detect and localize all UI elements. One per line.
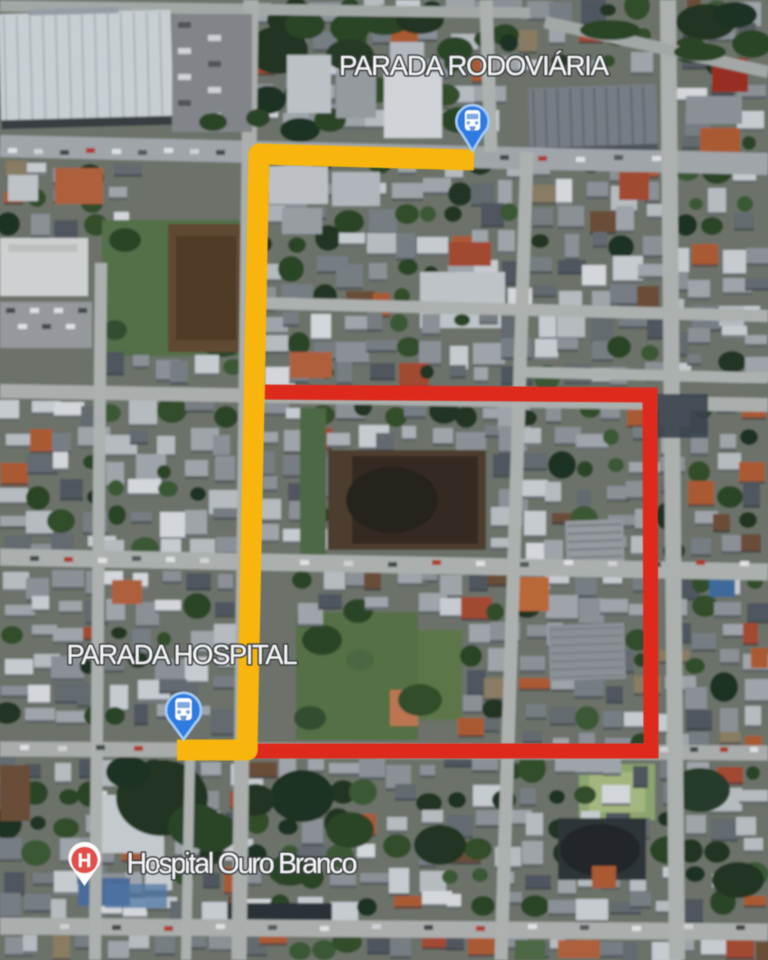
svg-text:PARADA RODOVIÁRIA: PARADA RODOVIÁRIA [339,50,610,81]
svg-text:H: H [78,851,92,872]
svg-text:Hospital Ouro Branco: Hospital Ouro Branco [127,848,358,880]
svg-text:PARADA HOSPITAL: PARADA HOSPITAL [67,639,298,670]
